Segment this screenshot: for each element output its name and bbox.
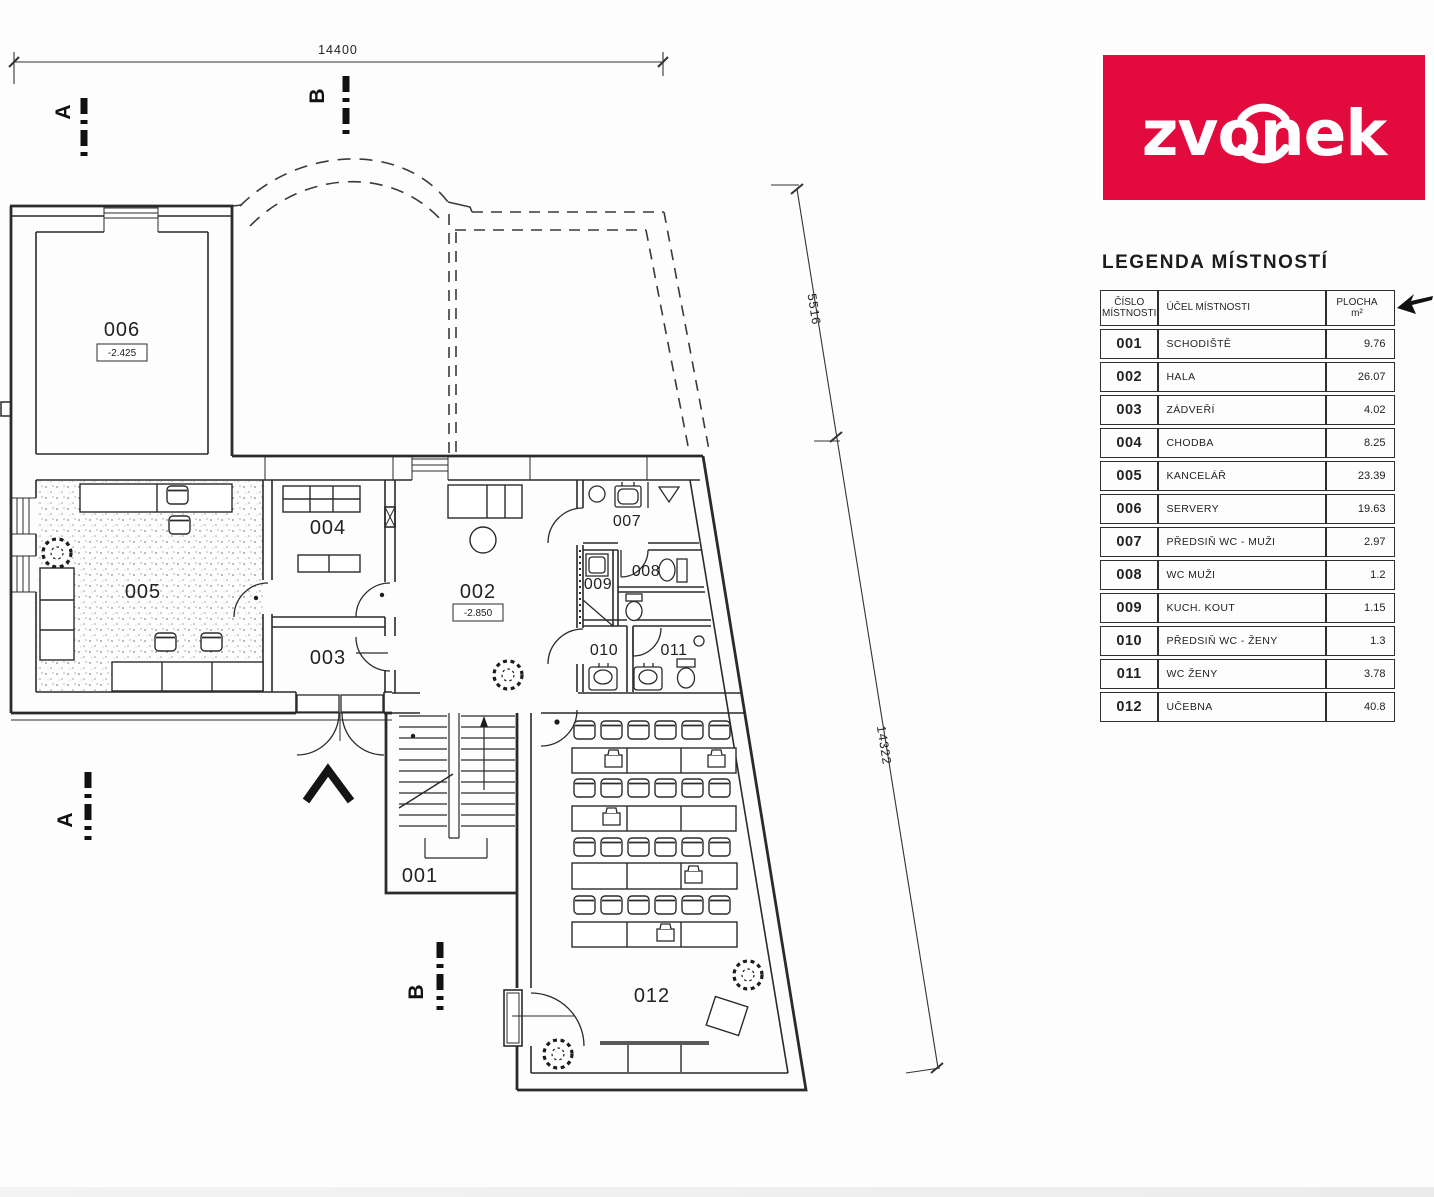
legend-header-area: PLOCHA m²	[1326, 290, 1395, 326]
room-label-001: 001	[402, 865, 438, 887]
washbasin-icon	[589, 486, 605, 502]
legend-header-purpose: ÚČEL MÍSTNOSTI	[1158, 290, 1326, 326]
plant-icon	[734, 961, 762, 989]
dimension-right-lower: 14322	[874, 725, 894, 766]
section-marker-b-top: B	[306, 88, 329, 103]
legend-row: 010PŘEDSIŇ WC - ŽENY1.3	[1100, 626, 1395, 656]
room-label-003: 003	[310, 647, 346, 669]
legend-row: 004CHODBA8.25	[1100, 428, 1395, 458]
zvonek-logo: zvonek	[1103, 55, 1425, 200]
legend-header-number: ČÍSLO MÍSTNOSTI	[1100, 290, 1158, 326]
svg-text:-2.850: -2.850	[464, 608, 493, 619]
dashed-outline-courtyard	[232, 159, 709, 454]
urinal-icon	[659, 487, 679, 502]
room-label-007: 007	[613, 513, 641, 530]
toilet-icon	[626, 594, 642, 601]
legend-row: 008WC MUŽI1.2	[1100, 560, 1395, 590]
teacher-desk	[600, 1043, 709, 1072]
legend-row: 005KANCELÁŘ23.39	[1100, 461, 1395, 491]
legend-row: 001SCHODIŠTĚ9.76	[1100, 329, 1395, 359]
chair-icon	[155, 633, 176, 651]
room-label-004: 004	[310, 517, 346, 539]
legend-row: 003ZÁDVEŘÍ4.02	[1100, 395, 1395, 425]
plant-icon	[544, 1040, 572, 1068]
legend-pointer-arrow-icon	[1396, 288, 1434, 318]
legend-row: 006SERVERY19.63	[1100, 494, 1395, 524]
floor-plan-drawing: 14400 5516 14322 A B A B 006 -2.425 005 …	[0, 0, 1010, 1197]
staircase	[399, 713, 515, 858]
toilet-icon	[677, 559, 687, 582]
legend-row: 009KUCH. KOUT1.15	[1100, 593, 1395, 623]
level-badge-002: -2.850	[453, 604, 503, 621]
legend-title: LEGENDA MÍSTNOSTÍ	[1102, 252, 1328, 274]
room-label-010: 010	[590, 642, 618, 659]
legend-table: ČÍSLO MÍSTNOSTI ÚČEL MÍSTNOSTI PLOCHA m²…	[1100, 287, 1395, 725]
legend-row: 007PŘEDSIŇ WC - MUŽI2.97	[1100, 527, 1395, 557]
dimension-top-width: 14400	[318, 43, 358, 57]
plant-icon	[43, 539, 71, 567]
section-marker-b-bottom: B	[405, 984, 428, 999]
room-label-012: 012	[634, 985, 670, 1007]
plant-icon	[494, 661, 522, 689]
chair-icon	[169, 516, 190, 534]
toilet-icon	[677, 659, 695, 667]
zvonek-logo-mark: zvonek	[1124, 63, 1404, 193]
room-label-006: 006	[104, 319, 140, 341]
chair-icon	[167, 486, 188, 504]
legend-row: 012UČEBNA40.8	[1100, 692, 1395, 722]
room-label-002: 002	[460, 581, 496, 603]
room-label-008: 008	[632, 563, 660, 580]
hall-002-furniture	[448, 485, 522, 553]
section-marker-a-top: A	[52, 104, 75, 119]
scanned-floor-plan-page: 14400 5516 14322 A B A B 006 -2.425 005 …	[0, 0, 1434, 1197]
side-table	[706, 996, 748, 1035]
entrance-direction-chevron	[306, 770, 351, 801]
room-label-005: 005	[125, 581, 161, 603]
room-label-011: 011	[660, 642, 687, 659]
dimension-right-upper: 5516	[805, 293, 824, 327]
scan-edge-shadow	[0, 1187, 1434, 1197]
legend-row: 002HALA26.07	[1100, 362, 1395, 392]
level-badge-006: -2.425	[97, 344, 147, 361]
legend-row: 011WC ŽENY3.78	[1100, 659, 1395, 689]
legend-header-row: ČÍSLO MÍSTNOSTI ÚČEL MÍSTNOSTI PLOCHA m²	[1100, 290, 1395, 326]
chair-icon	[201, 633, 222, 651]
section-marker-a-bottom: A	[54, 812, 77, 827]
svg-text:-2.425: -2.425	[108, 348, 137, 359]
room-label-009: 009	[584, 576, 612, 593]
